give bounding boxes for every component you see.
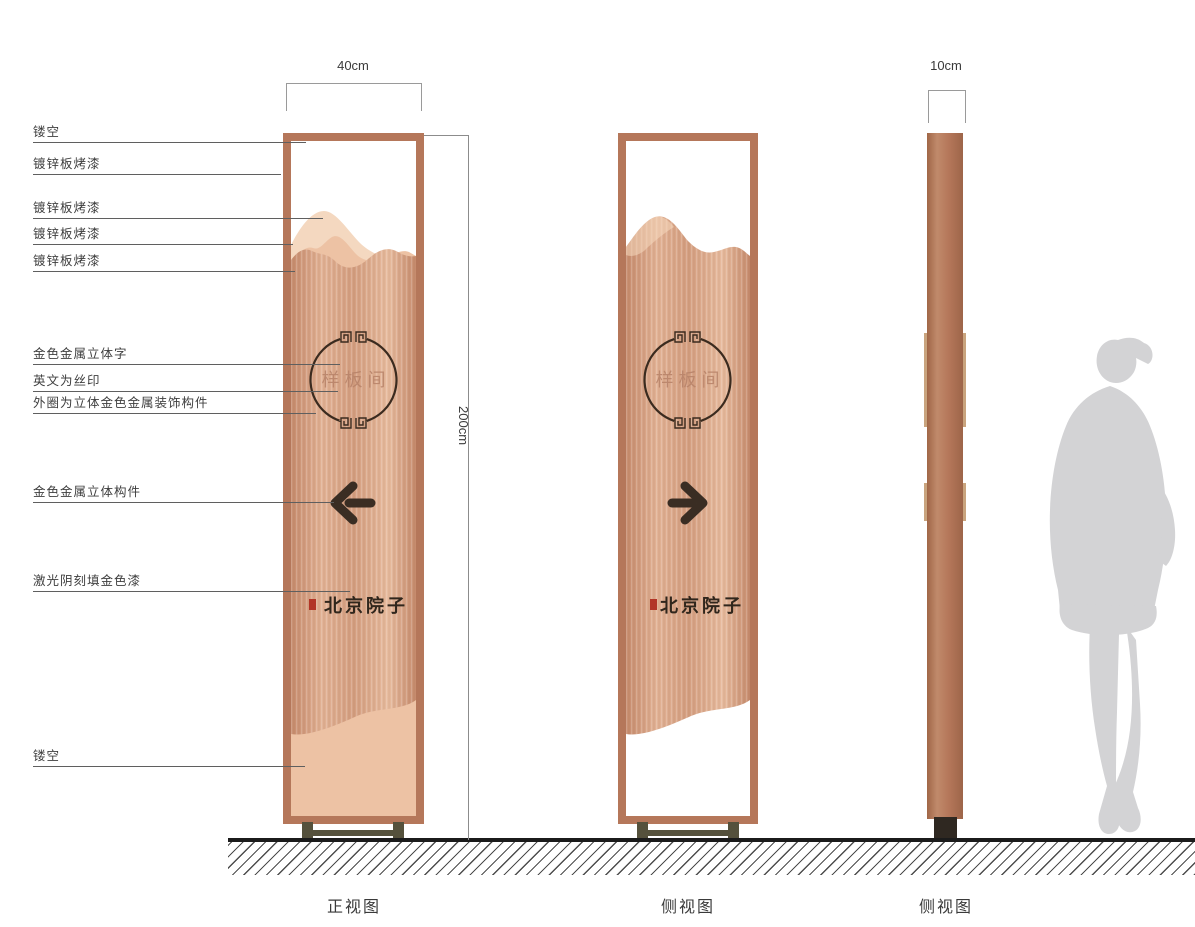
front-view-sign-graphic: 样板间 北京院子 xyxy=(291,141,416,816)
signage-design-sheet: 样板间 北京院子 xyxy=(0,0,1195,927)
dimension-thickness-label: 10cm xyxy=(912,58,980,73)
dimension-thickness-bracket xyxy=(928,90,966,123)
callout-label: 镀锌板烤漆 xyxy=(33,254,101,268)
callout-gold-ring-ornament: 外圈为立体金色金属装饰构件 xyxy=(33,396,316,414)
callout-label: 镀锌板烤漆 xyxy=(33,227,101,241)
view-label-front: 正视图 xyxy=(284,893,424,917)
callout-label: 英文为丝印 xyxy=(33,374,101,388)
brand-calligraphy: 北京院子 xyxy=(324,595,408,616)
callout-galvanized-3: 镀锌板烤漆 xyxy=(33,227,293,245)
ground-hatch xyxy=(228,842,1195,875)
dimension-height-line xyxy=(468,135,469,840)
view-label-profile: 侧视图 xyxy=(876,893,1016,917)
front-sign-base-bar xyxy=(306,830,400,836)
brand-calligraphy: 北京院子 xyxy=(660,595,744,616)
dimension-front-width-bracket xyxy=(286,83,422,111)
human-silhouette xyxy=(1036,334,1184,840)
callout-hollow-bottom: 镂空 xyxy=(33,749,305,767)
callout-hollow-top: 镂空 xyxy=(33,125,306,143)
callout-label: 金色金属立体字 xyxy=(33,347,128,361)
callout-label: 金色金属立体构件 xyxy=(33,485,141,499)
side-view-sign-graphic: 样板间 北京院子 xyxy=(626,141,750,816)
front-view-sign: 样板间 北京院子 xyxy=(283,133,424,824)
callout-laser-engraved-gold: 激光阴刻填金色漆 xyxy=(33,574,350,592)
callout-label: 外圈为立体金色金属装饰构件 xyxy=(33,396,209,410)
dimension-front-width-label: 40cm xyxy=(286,58,420,73)
profile-view-sign xyxy=(927,133,963,819)
callout-gold-3d-component: 金色金属立体构件 xyxy=(33,485,334,503)
callout-galvanized-2: 镀锌板烤漆 xyxy=(33,201,323,219)
callout-label: 镂空 xyxy=(33,749,60,763)
dimension-height-connector xyxy=(424,135,468,136)
side-view-sign: 样板间 北京院子 xyxy=(618,133,758,824)
copper-body-texture xyxy=(626,216,750,734)
callout-galvanized-1: 镀锌板烤漆 xyxy=(33,157,281,175)
room-name-text: 样板间 xyxy=(656,370,725,390)
callout-label: 镂空 xyxy=(33,125,60,139)
callout-silkscreen-english: 英文为丝印 xyxy=(33,374,338,392)
callout-label: 激光阴刻填金色漆 xyxy=(33,574,141,588)
side-sign-base-bar xyxy=(641,830,735,836)
red-seal-stamp-icon xyxy=(650,599,657,610)
callout-galvanized-4: 镀锌板烤漆 xyxy=(33,254,295,272)
dimension-height-label: 200cm xyxy=(456,406,471,445)
view-label-side: 侧视图 xyxy=(618,893,758,917)
callout-gold-3d-letters: 金色金属立体字 xyxy=(33,347,340,365)
callout-label: 镀锌板烤漆 xyxy=(33,201,101,215)
red-seal-stamp-icon xyxy=(309,599,316,610)
callout-label: 镀锌板烤漆 xyxy=(33,157,101,171)
